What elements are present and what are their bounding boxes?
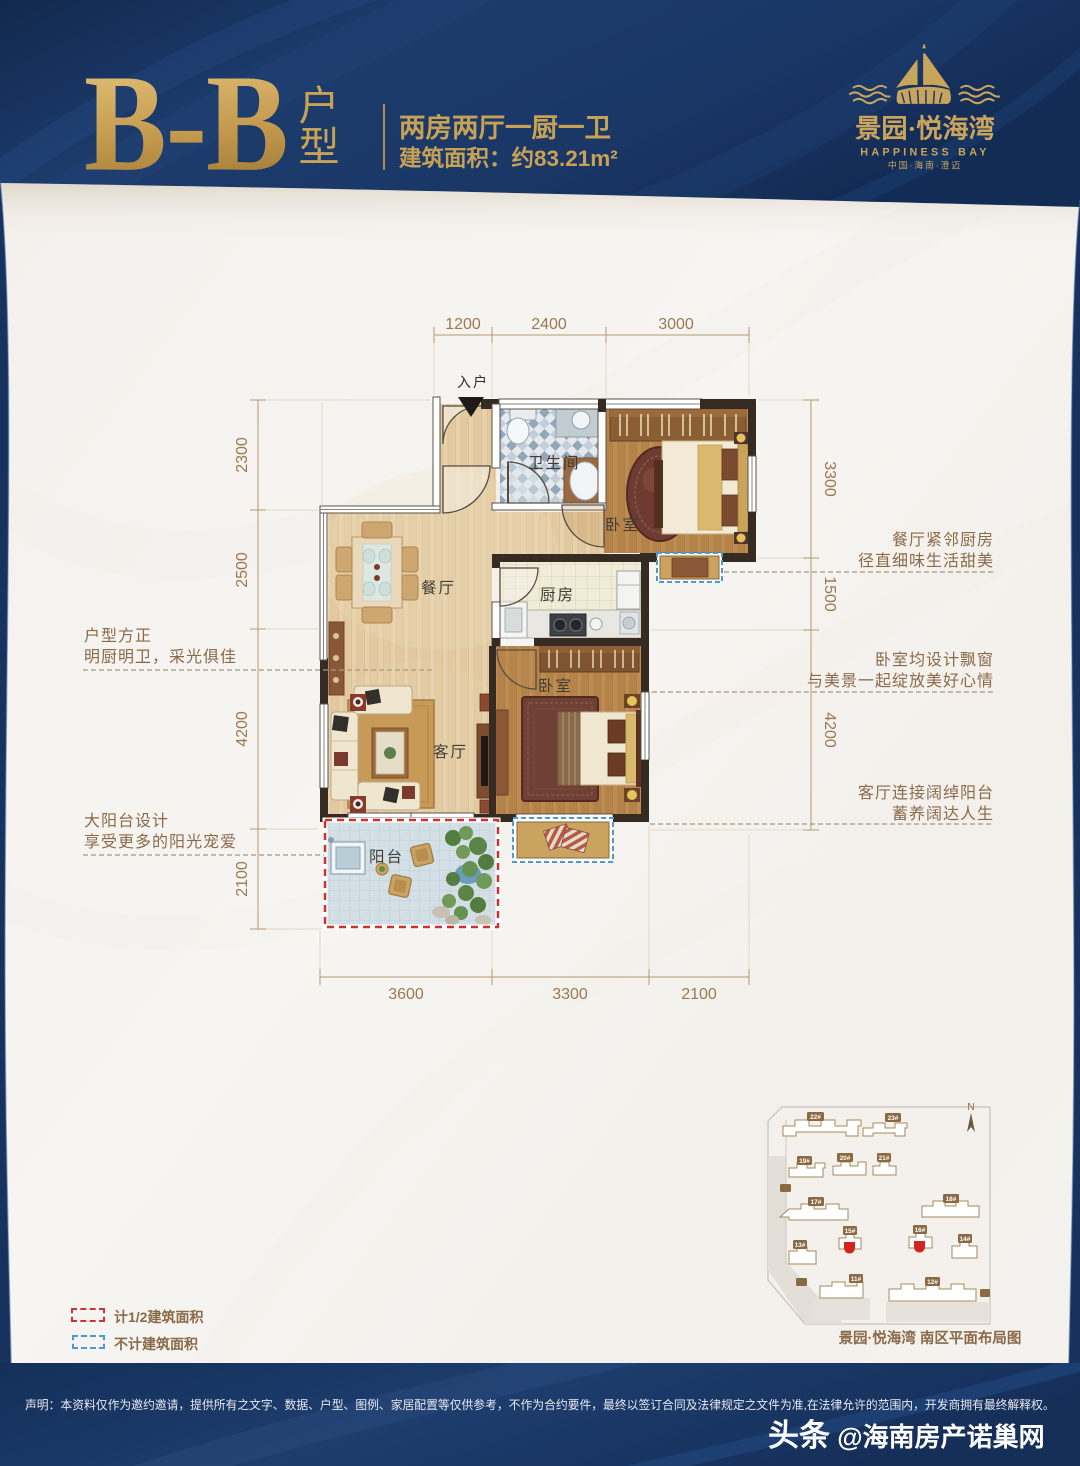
svg-text:2400: 2400 bbox=[531, 316, 567, 333]
svg-text:13#: 13# bbox=[795, 1242, 806, 1249]
svg-text:1500: 1500 bbox=[821, 576, 838, 612]
svg-text:2300: 2300 bbox=[234, 437, 251, 473]
svg-text:4200: 4200 bbox=[234, 711, 251, 747]
svg-text:阳台: 阳台 bbox=[369, 848, 404, 866]
svg-text:2500: 2500 bbox=[234, 552, 251, 588]
svg-text:23#: 23# bbox=[888, 1115, 899, 1122]
svg-text:15#: 15# bbox=[845, 1228, 856, 1235]
svg-text:19#: 19# bbox=[799, 1158, 810, 1165]
svg-text:入户: 入户 bbox=[457, 374, 489, 390]
svg-text:N: N bbox=[967, 1102, 974, 1113]
svg-text:客厅: 客厅 bbox=[433, 743, 468, 761]
svg-text:2100: 2100 bbox=[681, 986, 717, 1003]
svg-text:11#: 11# bbox=[851, 1276, 862, 1283]
svg-text:3000: 3000 bbox=[658, 316, 694, 333]
svg-text:3600: 3600 bbox=[388, 986, 424, 1003]
svg-text:卧室: 卧室 bbox=[538, 677, 573, 695]
svg-text:卧室: 卧室 bbox=[605, 516, 640, 534]
svg-text:3300: 3300 bbox=[821, 461, 838, 497]
svg-text:12#: 12# bbox=[927, 1279, 938, 1286]
svg-text:14#: 14# bbox=[960, 1236, 971, 1243]
svg-text:20#: 20# bbox=[840, 1155, 851, 1162]
svg-text:21#: 21# bbox=[879, 1155, 890, 1162]
svg-text:22#: 22# bbox=[810, 1114, 821, 1121]
svg-text:餐厅: 餐厅 bbox=[421, 579, 456, 597]
svg-text:卫生间: 卫生间 bbox=[528, 454, 581, 472]
svg-text:3300: 3300 bbox=[552, 986, 588, 1003]
svg-text:17#: 17# bbox=[811, 1199, 822, 1206]
svg-text:16#: 16# bbox=[915, 1227, 926, 1234]
svg-text:厨房: 厨房 bbox=[540, 586, 575, 604]
svg-text:18#: 18# bbox=[946, 1196, 957, 1203]
svg-text:1200: 1200 bbox=[445, 316, 481, 333]
svg-text:4200: 4200 bbox=[821, 712, 838, 748]
svg-text:2100: 2100 bbox=[234, 861, 251, 897]
